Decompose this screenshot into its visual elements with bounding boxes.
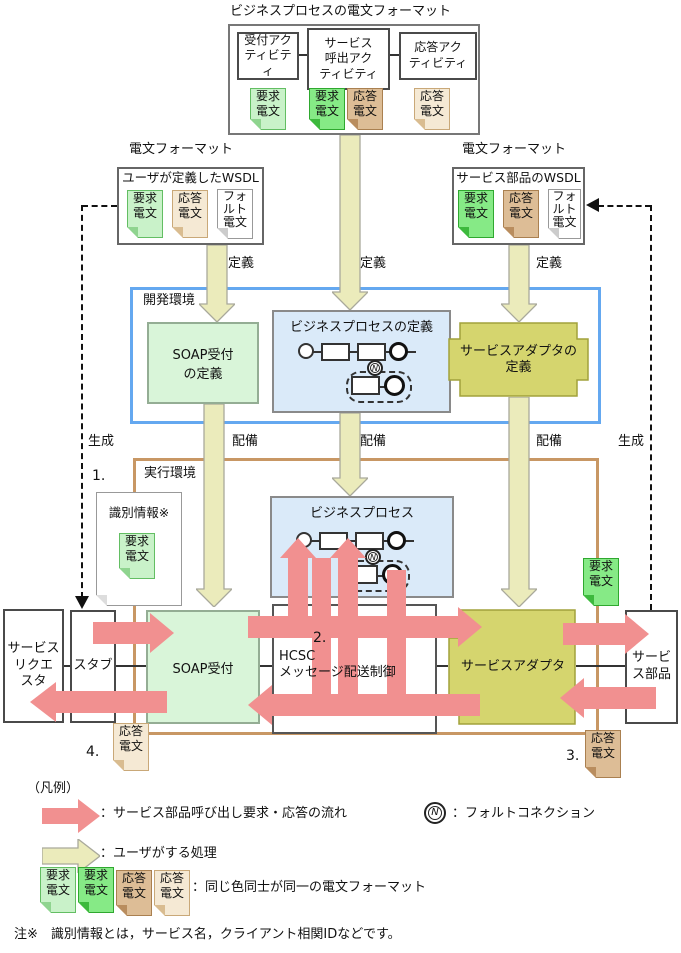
doc-response-dark: 応答 電文 xyxy=(503,190,539,238)
soap-definition-box: SOAP受付 の定義 xyxy=(147,322,259,404)
doc-request-bright: 要求 電文 xyxy=(583,558,619,606)
id-info-label: 識別情報※ xyxy=(97,505,181,521)
flow-activity-rect xyxy=(351,376,380,395)
doc-response-light: 応答 電文 xyxy=(154,870,190,916)
doc-request-light: 要求 電文 xyxy=(119,533,155,579)
doc-response-dark: 応答 電文 xyxy=(116,870,152,916)
doc-response-dark: 応答 電文 xyxy=(585,730,621,778)
flow-arrow-adapter-to-soap xyxy=(270,694,480,716)
define-arrow xyxy=(501,245,537,322)
wsdl-right-label: サービス部品のWSDL xyxy=(452,170,585,186)
arrowhead-down-icon xyxy=(75,596,89,609)
doc-response-light: 応答 電文 xyxy=(414,88,450,130)
step3-label: 3. xyxy=(566,748,579,764)
doc-request-bright: 要求 電文 xyxy=(309,88,345,130)
diagram-canvas: ビジネスプロセスの電文フォーマット 受付アク ティビティ サービス 呼出アク テ… xyxy=(0,0,681,953)
bp-definition-box: ビジネスプロセスの定義 N xyxy=(272,310,451,413)
bp-execution-title: ビジネスプロセス xyxy=(272,502,452,521)
legend-flow-arrow-icon xyxy=(42,799,100,833)
generate-label: 生成 xyxy=(618,434,644,450)
step1-label: 1. xyxy=(92,468,105,484)
bp-definition-title: ビジネスプロセスの定義 xyxy=(274,316,449,335)
generate-line-left xyxy=(81,205,83,598)
connector-line xyxy=(437,665,448,667)
doc-request-bright: 要求 電文 xyxy=(78,867,114,913)
wsdl-left-label: ユーザが定義したWSDL xyxy=(117,170,264,186)
id-info-document: 識別情報※ 要求 電文 xyxy=(96,492,182,606)
wsdl-right-title: 電文フォーマット xyxy=(462,142,566,158)
adapter-definition-label: サービスアダプタの 定義 xyxy=(452,330,585,390)
generate-line-right xyxy=(650,205,652,610)
flow-activity-rect xyxy=(357,343,386,361)
generate-line-right xyxy=(598,205,651,207)
connector-line xyxy=(260,665,272,667)
doc-request-light: 要求 電文 xyxy=(40,867,76,913)
define-arrow xyxy=(332,135,368,310)
flow-end-circle xyxy=(384,375,405,396)
doc-fault: フォ ルト 電文 xyxy=(548,189,581,239)
exec-env-label: 実行環境 xyxy=(144,466,196,482)
legend-flow-label: ：サービス部品呼び出し要求・応答の流れ xyxy=(100,806,347,822)
top-format-title: ビジネスプロセスの電文フォーマット xyxy=(230,4,451,20)
doc-request-light: 要求 電文 xyxy=(250,88,286,130)
activity-reception: 受付アク ティビティ xyxy=(237,32,299,80)
deploy-label: 配備 xyxy=(232,434,258,450)
activity-response: 応答アク ティビティ xyxy=(399,32,477,80)
legend-header: （凡例） xyxy=(27,781,79,797)
fault-connection-icon: N xyxy=(365,549,381,565)
doc-request-bright: 要求 電文 xyxy=(458,190,494,238)
doc-response-light: 応答 電文 xyxy=(113,723,149,771)
activity-service-call: サービス 呼出アク ティビティ xyxy=(307,28,390,90)
flow-start-circle xyxy=(298,343,314,359)
flow-arrow-up-to-bp xyxy=(288,556,308,638)
deploy-label: 配備 xyxy=(536,434,562,450)
connector-line xyxy=(576,665,625,667)
service-adapter-label: サービスアダプタ xyxy=(456,655,570,679)
flow-arrow-adapter-to-part xyxy=(563,623,625,645)
step2-label: 2. xyxy=(313,630,326,646)
hcsc-label: HCSC メッセージ配送制御 xyxy=(279,649,396,682)
generate-line-left xyxy=(82,205,117,207)
flow-end-circle xyxy=(389,342,408,361)
flow-activity-rect xyxy=(321,343,350,361)
flow-arrow-up-to-bp xyxy=(338,556,358,716)
wsdl-left-title: 電文フォーマット xyxy=(129,142,233,158)
legend-fault-label: ：フォルトコネクション xyxy=(452,806,595,822)
legend-user-label: ：ユーザがする処理 xyxy=(100,846,217,862)
flow-end-circle xyxy=(387,531,406,550)
deploy-arrow xyxy=(332,413,368,496)
flow-arrow-soap-to-requester xyxy=(56,691,167,713)
define-arrow xyxy=(199,245,235,322)
define-label: 定義 xyxy=(536,256,562,272)
legend-format-label: ：同じ色同士が同一の電文フォーマット xyxy=(192,880,426,896)
doc-fault: フォ ルト 電文 xyxy=(217,189,253,239)
flow-arrow-stub-to-soap xyxy=(93,622,151,644)
doc-response-light: 応答 電文 xyxy=(172,190,208,238)
dev-env-label: 開発環境 xyxy=(143,293,195,309)
doc-request-light: 要求 電文 xyxy=(127,190,163,238)
footnote: 注※ 識別情報とは，サービス名，クライアント相関IDなどです。 xyxy=(14,927,401,943)
connector-line xyxy=(116,665,146,667)
fault-connection-icon: N xyxy=(367,360,383,376)
flow-activity-rect xyxy=(355,532,384,550)
fault-connection-icon: N xyxy=(424,802,446,824)
generate-label: 生成 xyxy=(88,434,114,450)
step4-label: 4. xyxy=(86,744,99,760)
doc-response-dark: 応答 電文 xyxy=(347,88,383,130)
deploy-arrow xyxy=(196,404,232,607)
flow-arrow-part-to-adapter xyxy=(584,687,656,709)
deploy-arrow xyxy=(501,397,537,607)
